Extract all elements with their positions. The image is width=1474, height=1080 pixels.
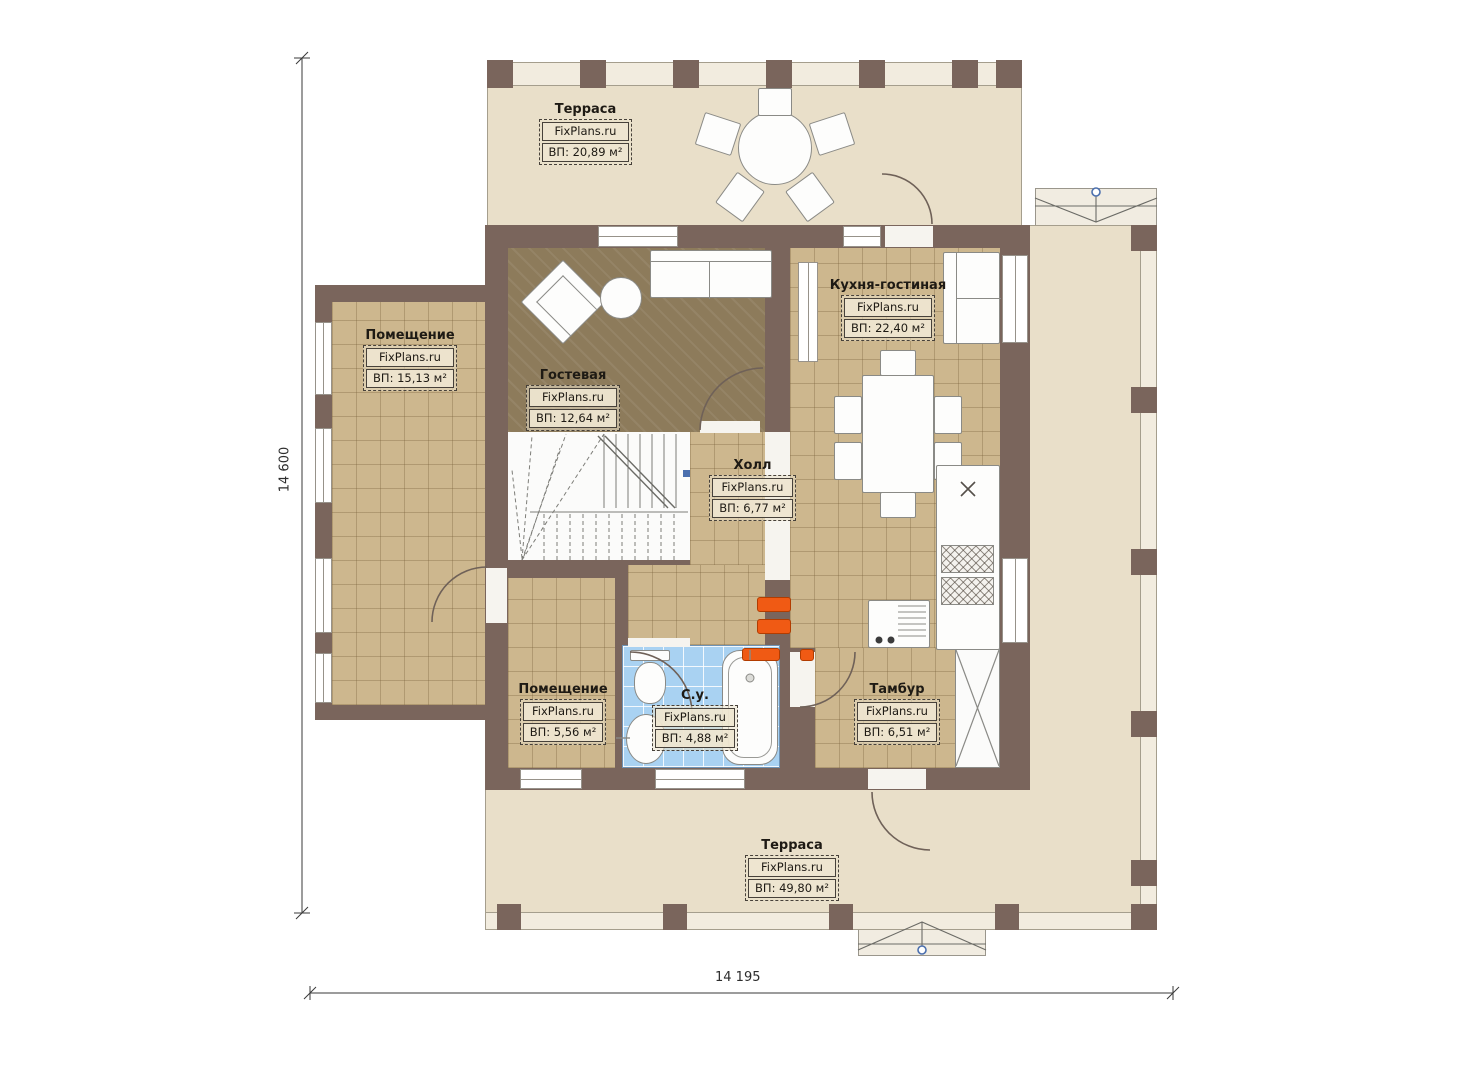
- dimension-width: 14 195: [715, 970, 761, 985]
- room-area: ВП: 6,51 м²: [857, 723, 938, 742]
- room-area: ВП: 4,88 м²: [655, 729, 736, 748]
- watermark: FixPlans.ru: [655, 708, 736, 727]
- range-details: [876, 606, 927, 644]
- room-name: Гостевая: [508, 368, 638, 383]
- room-area: ВП: 15,13 м²: [366, 369, 454, 388]
- room-name: Тамбур: [842, 682, 952, 697]
- room-area: ВП: 22,40 м²: [844, 319, 932, 338]
- watermark: FixPlans.ru: [712, 478, 793, 497]
- stair-treads: [512, 434, 690, 562]
- room-name: Помещение: [340, 328, 480, 343]
- sink-x-symbol: [961, 482, 975, 496]
- watermark: FixPlans.ru: [844, 298, 932, 317]
- label-hall: Холл FixPlans.ru ВП: 6,77 м²: [700, 458, 805, 521]
- room-name: С.у.: [640, 688, 750, 703]
- door-arc-guest: [700, 368, 763, 430]
- watermark: FixPlans.ru: [366, 348, 454, 367]
- watermark: FixPlans.ru: [523, 702, 604, 721]
- plan-linework: [0, 0, 1474, 1080]
- label-room-small: Помещение FixPlans.ru ВП: 5,56 м²: [508, 682, 618, 745]
- room-area: ВП: 6,77 м²: [712, 499, 793, 518]
- door-arc-kitchen-terrace: [882, 174, 932, 224]
- dimension-height: 14 600: [277, 447, 292, 493]
- room-name: Терраса: [722, 838, 862, 853]
- door-arc-leftwing: [432, 567, 487, 622]
- watermark: FixPlans.ru: [857, 702, 938, 721]
- closet-x: [956, 650, 999, 766]
- room-area: ВП: 49,80 м²: [748, 879, 836, 898]
- room-name: Помещение: [508, 682, 618, 697]
- label-kitchen-living: Кухня-гостиная FixPlans.ru ВП: 22,40 м²: [818, 278, 958, 341]
- label-guest-room: Гостевая FixPlans.ru ВП: 12,64 м²: [508, 368, 638, 431]
- room-area: ВП: 20,89 м²: [542, 143, 630, 162]
- label-vestibule: Тамбур FixPlans.ru ВП: 6,51 м²: [842, 682, 952, 745]
- room-name: Терраса: [513, 102, 658, 117]
- room-name: Кухня-гостиная: [818, 278, 958, 293]
- stair-marker: [683, 470, 690, 477]
- label-terrace-top: Терраса FixPlans.ru ВП: 20,89 м²: [513, 102, 658, 165]
- label-terrace-bottom: Терраса FixPlans.ru ВП: 49,80 м²: [722, 838, 862, 901]
- room-area: ВП: 5,56 м²: [523, 723, 604, 742]
- watermark: FixPlans.ru: [529, 388, 617, 407]
- watermark: FixPlans.ru: [748, 858, 836, 877]
- room-name: Холл: [700, 458, 805, 473]
- label-room-left: Помещение FixPlans.ru ВП: 15,13 м²: [340, 328, 480, 391]
- door-arc-entrance: [872, 792, 930, 850]
- room-area: ВП: 12,64 м²: [529, 409, 617, 428]
- label-bathroom: С.у. FixPlans.ru ВП: 4,88 м²: [640, 688, 750, 751]
- watermark: FixPlans.ru: [542, 122, 630, 141]
- floor-plan: 14 600 14 195 Терраса FixPlans.ru ВП: 20…: [0, 0, 1474, 1080]
